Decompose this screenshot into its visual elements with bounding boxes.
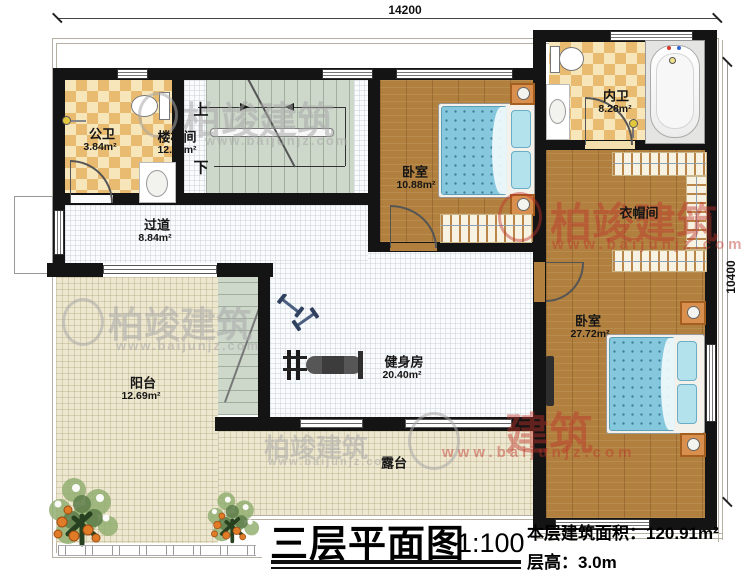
hot-tap-icon [667, 46, 671, 50]
bathtub-inner [656, 53, 694, 129]
floor-height-metric: 层高：3.0m [527, 548, 617, 573]
room-label-yangtai: 阳台 [130, 373, 156, 392]
shower-valve-icon [629, 119, 638, 128]
room-area-guodao: 8.84m² [138, 232, 171, 244]
dumbbells-icon [276, 294, 332, 340]
watermark-logo-icon [62, 298, 104, 346]
lamp-icon [687, 438, 700, 451]
title-rule [271, 560, 521, 564]
floor-area-value: 120.91m² [646, 524, 719, 543]
pillow-icon [677, 384, 697, 424]
room-label-neiwei: 内卫 [603, 86, 629, 105]
sink-icon [549, 99, 566, 124]
room-label-lutai: 露台 [381, 453, 407, 472]
sliding-door [103, 265, 217, 274]
plant-icon [204, 486, 268, 552]
room-area-neiwei: 8.28m² [598, 103, 631, 115]
room-label-jianshenfang: 健身房 [384, 352, 423, 371]
door-leaf [390, 205, 391, 248]
railing-line [722, 40, 723, 540]
shower-arm [632, 128, 634, 138]
watermark-url: www.baijunjz.com [442, 444, 635, 461]
window [706, 344, 716, 422]
room-area-loutijian: 12.00m² [157, 144, 196, 156]
room-area-yangtai: 12.69m² [121, 390, 160, 402]
door-leaf [546, 262, 584, 263]
room-area-jianshenfang: 20.40m² [382, 369, 421, 381]
barbell-bar [283, 368, 307, 371]
window [396, 69, 513, 79]
door-leaf [70, 160, 71, 203]
room-label-bedroom2: 卧室 [575, 311, 601, 330]
floor-height-label: 层高： [527, 553, 578, 572]
railing-posts [58, 545, 256, 556]
closet-rack [612, 152, 707, 176]
railing-line [718, 38, 719, 542]
bench-rack-bar [287, 350, 291, 380]
lamp-icon [687, 306, 700, 319]
stair-direction-line [214, 166, 345, 167]
room-label-loutijian: 楼梯间 [157, 127, 196, 146]
cold-tap-icon [677, 46, 681, 50]
watermark-url: www.baijunjz.com [552, 236, 745, 253]
wall [705, 30, 717, 530]
wall [368, 68, 380, 252]
weight-bench-pad [322, 356, 344, 374]
bed-sheet [492, 107, 507, 194]
lamp-icon [517, 87, 530, 100]
dimension-right-value: 10400 [724, 249, 738, 305]
railing-line [52, 557, 262, 558]
watermark-url: www.baijunjz.com [268, 456, 395, 468]
wall [47, 263, 103, 277]
pillow-icon [511, 110, 531, 148]
closet-rack [612, 250, 707, 272]
dimension-top-value: 14200 [375, 3, 435, 17]
shower-valve-icon [62, 116, 71, 125]
room-label-bedroom1: 卧室 [402, 162, 428, 181]
room-area-bedroom1: 10.88m² [396, 179, 435, 191]
floorplan-canvas: 柏竣建筑 www.baijunjz.com 柏竣建筑 www.baijunjz.… [0, 0, 750, 585]
sliding-door [300, 419, 363, 428]
watermark-logo-icon [408, 412, 460, 470]
room-label-guodao: 过道 [144, 215, 170, 234]
window [117, 69, 148, 79]
watermark-url: www.baijunjz.com [116, 338, 260, 353]
watermark-logo-icon [498, 192, 542, 242]
pillow-icon [677, 341, 697, 381]
window [54, 210, 64, 255]
watermark-url: www.baijunjz.com [205, 133, 349, 148]
door-opening [534, 262, 545, 302]
corridor-floor [65, 205, 368, 263]
room-area-gongwei: 3.84m² [83, 141, 116, 153]
dimension-line-top [57, 18, 717, 19]
bench-rack-bar [296, 350, 300, 380]
floor-area-metric: 本层建筑面积：120.91m² [527, 519, 719, 544]
stair-down-label: 下 [193, 157, 208, 178]
door-leaf [585, 97, 586, 145]
barbell-bar [283, 356, 307, 359]
room-area-bedroom2: 27.72m² [570, 328, 609, 340]
room-label-yimaojian: 衣帽间 [619, 203, 658, 222]
drawing-scale: 1:100 [457, 528, 525, 559]
window [322, 69, 373, 79]
floor-height-value: 3.0m [578, 553, 617, 572]
sink-icon [146, 170, 168, 197]
pillow-icon [511, 151, 531, 189]
plant-icon [44, 474, 130, 554]
toilet-icon [559, 47, 584, 71]
floor-area-label: 本层建筑面积： [527, 524, 646, 543]
drain-icon [669, 57, 676, 64]
shower-arm [71, 120, 86, 122]
stair-up-label: 上 [193, 99, 208, 120]
title-rule [271, 567, 521, 569]
room-label-gongwei: 公卫 [89, 124, 115, 143]
bed-sheet [661, 338, 675, 430]
bench-post [358, 351, 363, 379]
